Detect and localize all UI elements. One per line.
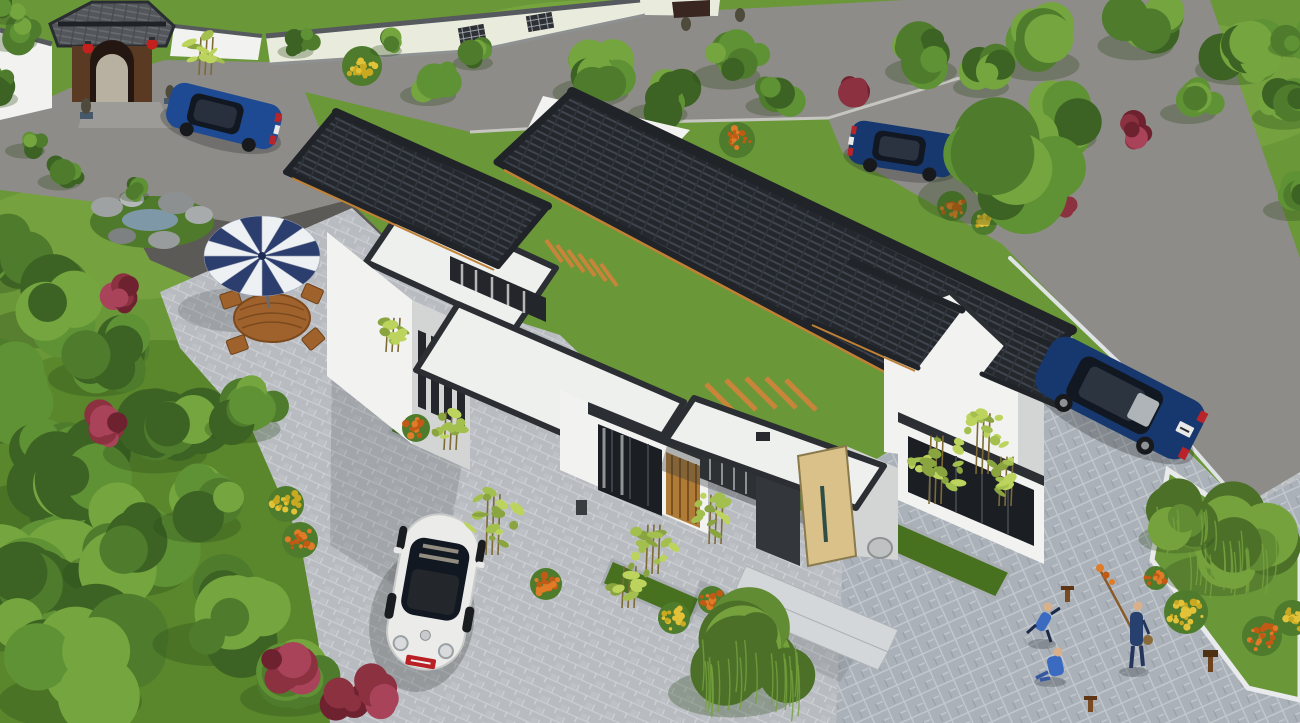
foliage [951, 112, 1035, 196]
foliage [978, 63, 998, 83]
flower [1183, 623, 1190, 630]
foliage [1183, 86, 1207, 110]
flower [681, 621, 687, 627]
flower [1273, 625, 1279, 631]
flower [704, 603, 707, 606]
foliage [109, 289, 128, 308]
flower [548, 586, 553, 591]
pond-rock [185, 206, 213, 224]
flower [409, 427, 412, 430]
lantern-cap [149, 37, 155, 40]
stone-drum [868, 538, 892, 558]
flower [706, 594, 709, 597]
foliage [760, 77, 781, 98]
flower [534, 578, 538, 582]
flower [1154, 576, 1158, 580]
foliage [50, 159, 76, 185]
foliage [370, 684, 399, 713]
foliage [49, 455, 89, 495]
person-shadow [1119, 667, 1149, 677]
stone-lion [681, 17, 691, 31]
flower [356, 68, 361, 73]
architectural-rendering: Aerial 3D rendering of a white Chinese-s… [0, 0, 1300, 723]
foliage [4, 623, 71, 690]
flower [1259, 633, 1265, 639]
flower [279, 505, 283, 509]
flower [727, 132, 732, 137]
wood-post-cap [1084, 696, 1097, 700]
flower [282, 506, 288, 512]
wood-post-cap [1061, 586, 1074, 590]
flower [662, 616, 666, 620]
flower [1287, 607, 1292, 612]
wall-unit [576, 500, 587, 515]
flower [1196, 603, 1202, 609]
flower [1157, 579, 1163, 585]
foliage [61, 330, 110, 379]
foliage [291, 43, 302, 54]
red-lantern [147, 39, 158, 50]
flower [540, 586, 547, 593]
foliage [591, 66, 626, 101]
flower [291, 508, 297, 514]
foliage [131, 182, 144, 195]
red-lantern [83, 43, 94, 54]
flower [1288, 616, 1294, 622]
flower [1167, 616, 1173, 622]
flower [357, 57, 364, 64]
flower [555, 577, 560, 582]
flower [1268, 645, 1271, 648]
pond-rock [108, 228, 136, 244]
flower [285, 536, 291, 542]
flower [294, 500, 298, 504]
flower [748, 140, 751, 143]
flower [366, 68, 374, 76]
flower [1144, 575, 1149, 580]
flower [1190, 599, 1198, 607]
flower [729, 140, 732, 143]
foliage [229, 386, 268, 425]
person-head [1054, 648, 1063, 657]
satchel [1143, 635, 1153, 645]
flower [1147, 581, 1151, 585]
flower [1174, 600, 1179, 605]
candy [1096, 564, 1104, 572]
flower [275, 495, 280, 500]
flower [1200, 615, 1203, 618]
flower [1251, 629, 1254, 632]
flower [303, 540, 310, 547]
flower [371, 61, 376, 66]
lamp-head [1203, 650, 1218, 657]
flower [1257, 631, 1260, 634]
foliage [1284, 35, 1300, 51]
foliage [416, 63, 452, 99]
flower [1190, 607, 1197, 614]
flower [736, 130, 740, 134]
flower [541, 578, 547, 584]
flower [743, 136, 747, 140]
moon-gate-view [96, 54, 128, 102]
flower [270, 503, 275, 508]
person-head [1044, 603, 1053, 612]
foliage [383, 36, 399, 52]
flower [1174, 615, 1177, 618]
flower [1250, 640, 1254, 644]
flower [1270, 635, 1276, 641]
flower-orange [282, 522, 318, 558]
flower [417, 433, 422, 438]
flower [1262, 623, 1270, 631]
foliage [1229, 21, 1273, 65]
flower-yellow [1164, 590, 1208, 634]
flower [295, 534, 299, 538]
wood-post [1088, 698, 1093, 712]
flower [710, 600, 714, 604]
foliage [145, 402, 190, 447]
foliage [705, 43, 726, 64]
flower [700, 595, 704, 599]
pond-rock [148, 231, 180, 249]
flower [674, 609, 681, 616]
flower [1180, 611, 1187, 618]
entrance-door [798, 446, 856, 566]
flower [1179, 621, 1184, 626]
flower [661, 611, 667, 617]
flower [293, 539, 298, 544]
scene-render [0, 0, 1300, 723]
flower [285, 495, 290, 500]
compound-door [672, 0, 710, 18]
flower [411, 421, 418, 428]
flower [299, 544, 303, 548]
flower [742, 140, 745, 143]
foliage [895, 34, 923, 62]
flower [739, 130, 745, 136]
flower [307, 529, 312, 534]
foliage [845, 78, 868, 101]
flower [1148, 576, 1152, 580]
foliage [189, 619, 225, 655]
flower [347, 71, 352, 76]
flower [673, 616, 677, 620]
wood-post [1065, 588, 1070, 602]
flower [299, 533, 303, 537]
pond-rock [91, 197, 123, 217]
flower [291, 546, 294, 549]
foliage [99, 525, 147, 573]
flower [667, 611, 671, 615]
flower [734, 145, 739, 150]
flower-yellow [268, 486, 304, 522]
flower [716, 590, 723, 597]
candy [1103, 572, 1110, 579]
foliage [23, 134, 37, 148]
flower [1254, 647, 1258, 651]
foliage [721, 58, 744, 81]
foliage [1124, 122, 1140, 138]
foliage [28, 283, 67, 322]
flower [541, 572, 549, 580]
flower [1257, 638, 1262, 643]
flower-orange [530, 568, 562, 600]
lantern-cap [85, 41, 91, 44]
stone-lion [81, 98, 91, 114]
foliage [344, 694, 362, 712]
car-roof-glass [406, 568, 460, 616]
foliage [458, 40, 484, 66]
flower [1268, 640, 1273, 645]
person-body [1130, 612, 1143, 646]
foliage [261, 649, 282, 670]
foliage [1168, 504, 1194, 530]
door-lamp [756, 432, 770, 441]
foliage [301, 28, 313, 40]
flower [1187, 619, 1193, 625]
candy [1109, 579, 1115, 585]
person-head [1134, 602, 1143, 611]
lamp-post [1208, 656, 1213, 672]
flower-orange [1242, 616, 1282, 656]
foliage [213, 482, 244, 513]
foliage [9, 3, 25, 19]
flower [284, 502, 287, 505]
foliage [107, 412, 127, 432]
foliage [62, 617, 130, 685]
foliage [920, 46, 947, 73]
flower [1173, 618, 1179, 624]
flower [407, 432, 414, 439]
shrub-red [838, 76, 870, 107]
parasol-tip [258, 252, 266, 260]
stone-lion [735, 8, 745, 22]
flower [710, 593, 717, 600]
flower-orange [402, 414, 430, 442]
flower [404, 422, 408, 426]
flower [669, 627, 672, 630]
foliage [1024, 14, 1073, 63]
flower [1161, 578, 1167, 584]
flower-yellow [658, 602, 690, 634]
flower-orange [719, 122, 755, 158]
